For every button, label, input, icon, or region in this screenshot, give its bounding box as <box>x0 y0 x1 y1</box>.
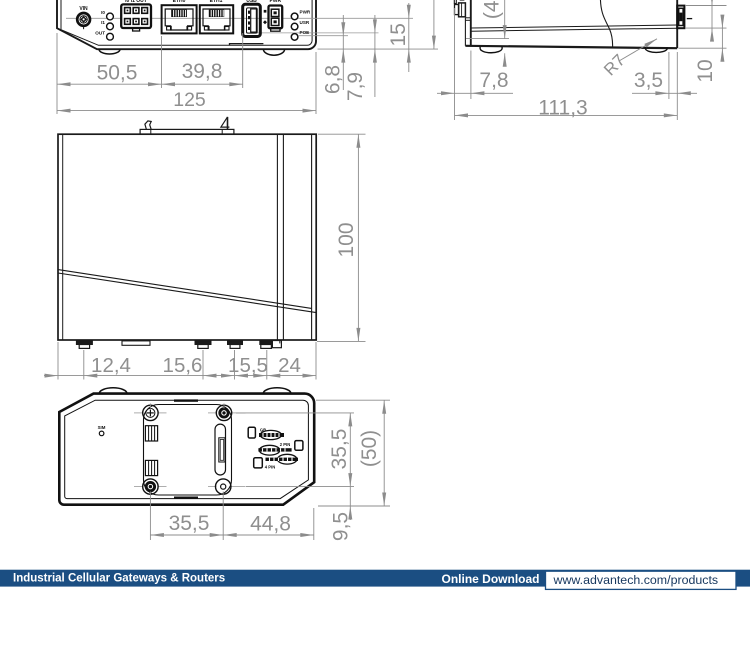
svg-text:15: 15 <box>387 23 410 46</box>
svg-text:50,5: 50,5 <box>97 61 138 84</box>
svg-text:PWR: PWR <box>269 0 281 4</box>
svg-text:PWR: PWR <box>300 9 311 14</box>
svg-text:4 PIN: 4 PIN <box>265 464 275 469</box>
svg-text:39,8: 39,8 <box>182 60 223 83</box>
svg-text:OUT: OUT <box>95 30 105 35</box>
svg-text:12,4: 12,4 <box>91 354 131 377</box>
svg-text:3,5: 3,5 <box>634 69 663 92</box>
svg-text:ETH0: ETH0 <box>173 0 186 4</box>
svg-text:44,8: 44,8 <box>250 512 291 535</box>
svg-text:111,3: 111,3 <box>538 96 587 119</box>
svg-text:15,5: 15,5 <box>228 354 268 377</box>
svg-text:SIM: SIM <box>98 425 106 430</box>
svg-text:7,9: 7,9 <box>344 72 367 101</box>
svg-text:7,8: 7,8 <box>479 69 508 92</box>
svg-text:100: 100 <box>335 222 358 257</box>
svg-text:R7: R7 <box>600 51 629 80</box>
svg-text:(50): (50) <box>358 430 381 467</box>
svg-text:9,5: 9,5 <box>330 512 353 541</box>
svg-text:35,5: 35,5 <box>328 429 351 470</box>
svg-text:(4,5): (4,5) <box>481 0 504 19</box>
svg-text:I0 I1 OUT: I0 I1 OUT <box>125 0 147 4</box>
svg-text:POE: POE <box>300 30 310 35</box>
svg-text:Online Download: Online Download <box>442 572 540 586</box>
svg-text:ETH1: ETH1 <box>210 0 223 4</box>
svg-text:www.advantech.com/products: www.advantech.com/products <box>553 573 719 587</box>
svg-text:Industrial Cellular Gateways &: Industrial Cellular Gateways & Routers <box>13 573 225 585</box>
svg-text:35,5: 35,5 <box>169 512 210 535</box>
svg-text:I1: I1 <box>101 20 105 25</box>
svg-text:15,6: 15,6 <box>163 354 203 377</box>
svg-text:2 PIN: 2 PIN <box>280 442 290 447</box>
svg-text:6,8: 6,8 <box>322 65 345 94</box>
svg-text:10: 10 <box>694 59 717 82</box>
svg-text:125: 125 <box>173 89 206 111</box>
svg-text:24: 24 <box>278 354 301 377</box>
svg-text:USR: USR <box>300 20 310 25</box>
svg-text:VIN: VIN <box>79 6 88 12</box>
svg-text:I0: I0 <box>101 10 105 15</box>
